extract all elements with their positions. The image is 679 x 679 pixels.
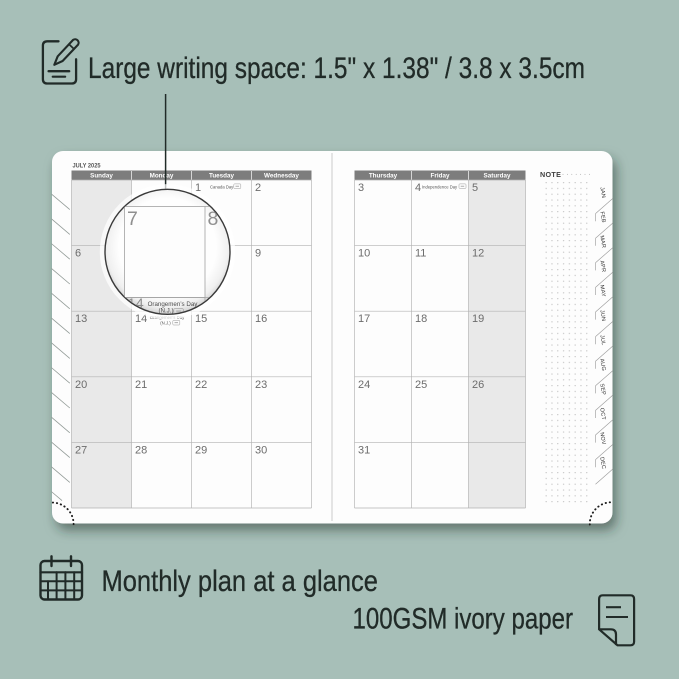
svg-text:26: 26 <box>472 379 484 391</box>
svg-text:100GSM ivory paper: 100GSM ivory paper <box>353 603 574 636</box>
svg-text:22: 22 <box>195 379 207 391</box>
svg-text:20: 20 <box>75 379 87 391</box>
svg-text:15: 15 <box>195 313 207 325</box>
svg-text:9: 9 <box>255 248 261 260</box>
svg-text:28: 28 <box>135 444 147 456</box>
svg-text:19: 19 <box>472 313 484 325</box>
svg-text:11: 11 <box>415 248 426 260</box>
svg-text:2: 2 <box>255 182 261 194</box>
svg-text:Saturday: Saturday <box>484 173 511 180</box>
svg-text:13: 13 <box>75 313 87 325</box>
svg-text:Monday: Monday <box>150 173 174 180</box>
svg-text:NOTE: NOTE <box>540 170 561 179</box>
svg-text:Wednesday: Wednesday <box>264 173 299 180</box>
svg-text:30: 30 <box>255 444 267 456</box>
svg-text:23: 23 <box>255 379 267 391</box>
svg-text:Monthly plan at a glance: Monthly plan at a glance <box>102 565 379 598</box>
svg-text:Canada Day: Canada Day <box>210 184 234 189</box>
svg-text:Independence Day: Independence Day <box>422 184 458 189</box>
svg-text:Friday: Friday <box>431 173 450 180</box>
svg-text:Thursday: Thursday <box>369 173 398 180</box>
svg-text:(N.J.): (N.J.) <box>160 320 171 325</box>
svg-text:6: 6 <box>75 248 81 260</box>
svg-text:18: 18 <box>415 313 427 325</box>
svg-text:10: 10 <box>358 248 370 260</box>
svg-text:25: 25 <box>415 379 427 391</box>
svg-text:31: 31 <box>358 444 370 456</box>
svg-text:4: 4 <box>415 182 421 194</box>
svg-text:16: 16 <box>255 313 267 325</box>
svg-text:17: 17 <box>358 313 370 325</box>
svg-text:Sunday: Sunday <box>90 173 113 180</box>
svg-text:24: 24 <box>358 379 370 391</box>
svg-text:5: 5 <box>472 182 478 194</box>
svg-text:JULY 2025: JULY 2025 <box>73 163 101 170</box>
svg-text:21: 21 <box>135 379 147 391</box>
svg-text:Tuesday: Tuesday <box>209 173 235 180</box>
svg-text:29: 29 <box>195 444 207 456</box>
svg-text:12: 12 <box>472 248 484 260</box>
svg-text:27: 27 <box>75 444 87 456</box>
svg-text:7: 7 <box>127 208 138 230</box>
svg-text:3: 3 <box>358 182 364 194</box>
svg-text:Large writing space: 1.5" x 1.: Large writing space: 1.5" x 1.38" / 3.8 … <box>88 52 585 85</box>
